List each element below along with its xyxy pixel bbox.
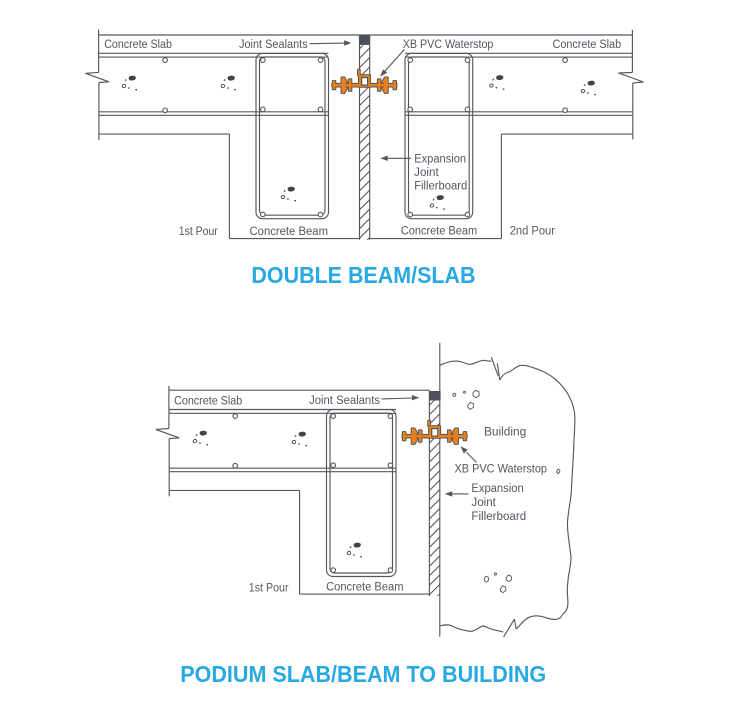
svg-text:Concrete Beam: Concrete Beam (326, 582, 403, 594)
svg-text:Joint: Joint (471, 497, 496, 509)
svg-text:XB PVC Waterstop: XB PVC Waterstop (403, 39, 494, 51)
svg-text:PODIUM SLAB/BEAM TO BUILDING: PODIUM SLAB/BEAM TO BUILDING (180, 661, 546, 687)
svg-text:Expansion: Expansion (414, 154, 466, 166)
svg-text:1st Pour: 1st Pour (249, 583, 289, 595)
svg-text:Joint Sealants: Joint Sealants (239, 39, 308, 51)
svg-text:XB PVC Waterstop: XB PVC Waterstop (455, 464, 548, 476)
svg-text:Joint Sealants: Joint Sealants (309, 395, 380, 407)
svg-text:Fillerboard: Fillerboard (471, 511, 526, 523)
svg-text:Concrete Beam: Concrete Beam (401, 226, 477, 238)
svg-text:Concrete Slab: Concrete Slab (174, 396, 242, 408)
svg-text:1st Pour: 1st Pour (179, 226, 218, 238)
svg-text:DOUBLE BEAM/SLAB: DOUBLE BEAM/SLAB (251, 262, 475, 288)
svg-text:Expansion: Expansion (471, 483, 523, 495)
svg-text:Fillerboard: Fillerboard (414, 181, 467, 193)
svg-text:Concrete Beam: Concrete Beam (250, 226, 329, 238)
svg-text:2nd Pour: 2nd Pour (510, 226, 555, 238)
svg-text:Concrete Slab: Concrete Slab (104, 39, 172, 51)
svg-text:Building: Building (484, 427, 526, 439)
svg-text:Concrete Slab: Concrete Slab (553, 39, 622, 51)
svg-text:Joint: Joint (414, 167, 439, 179)
